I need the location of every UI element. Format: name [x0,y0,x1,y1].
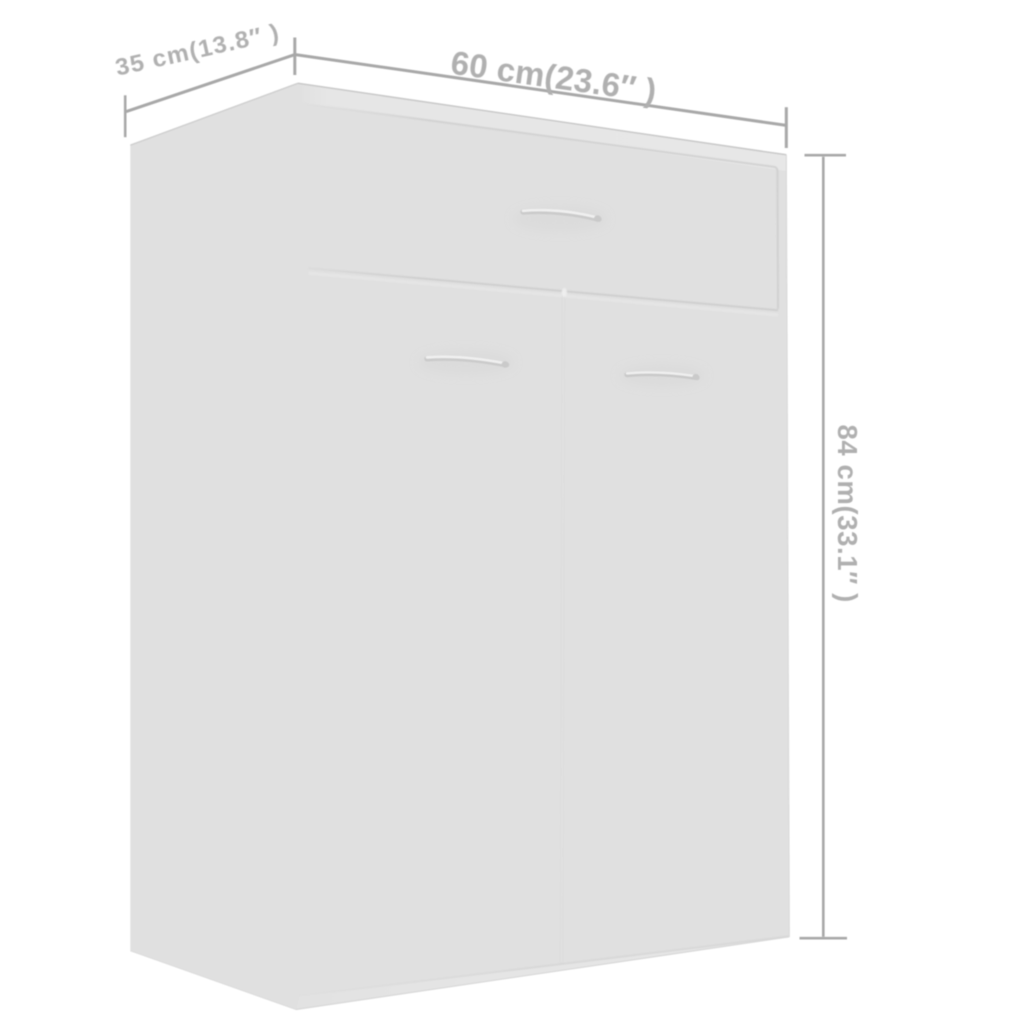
svg-text:84 cm(33.1″ ): 84 cm(33.1″ ) [832,425,863,603]
